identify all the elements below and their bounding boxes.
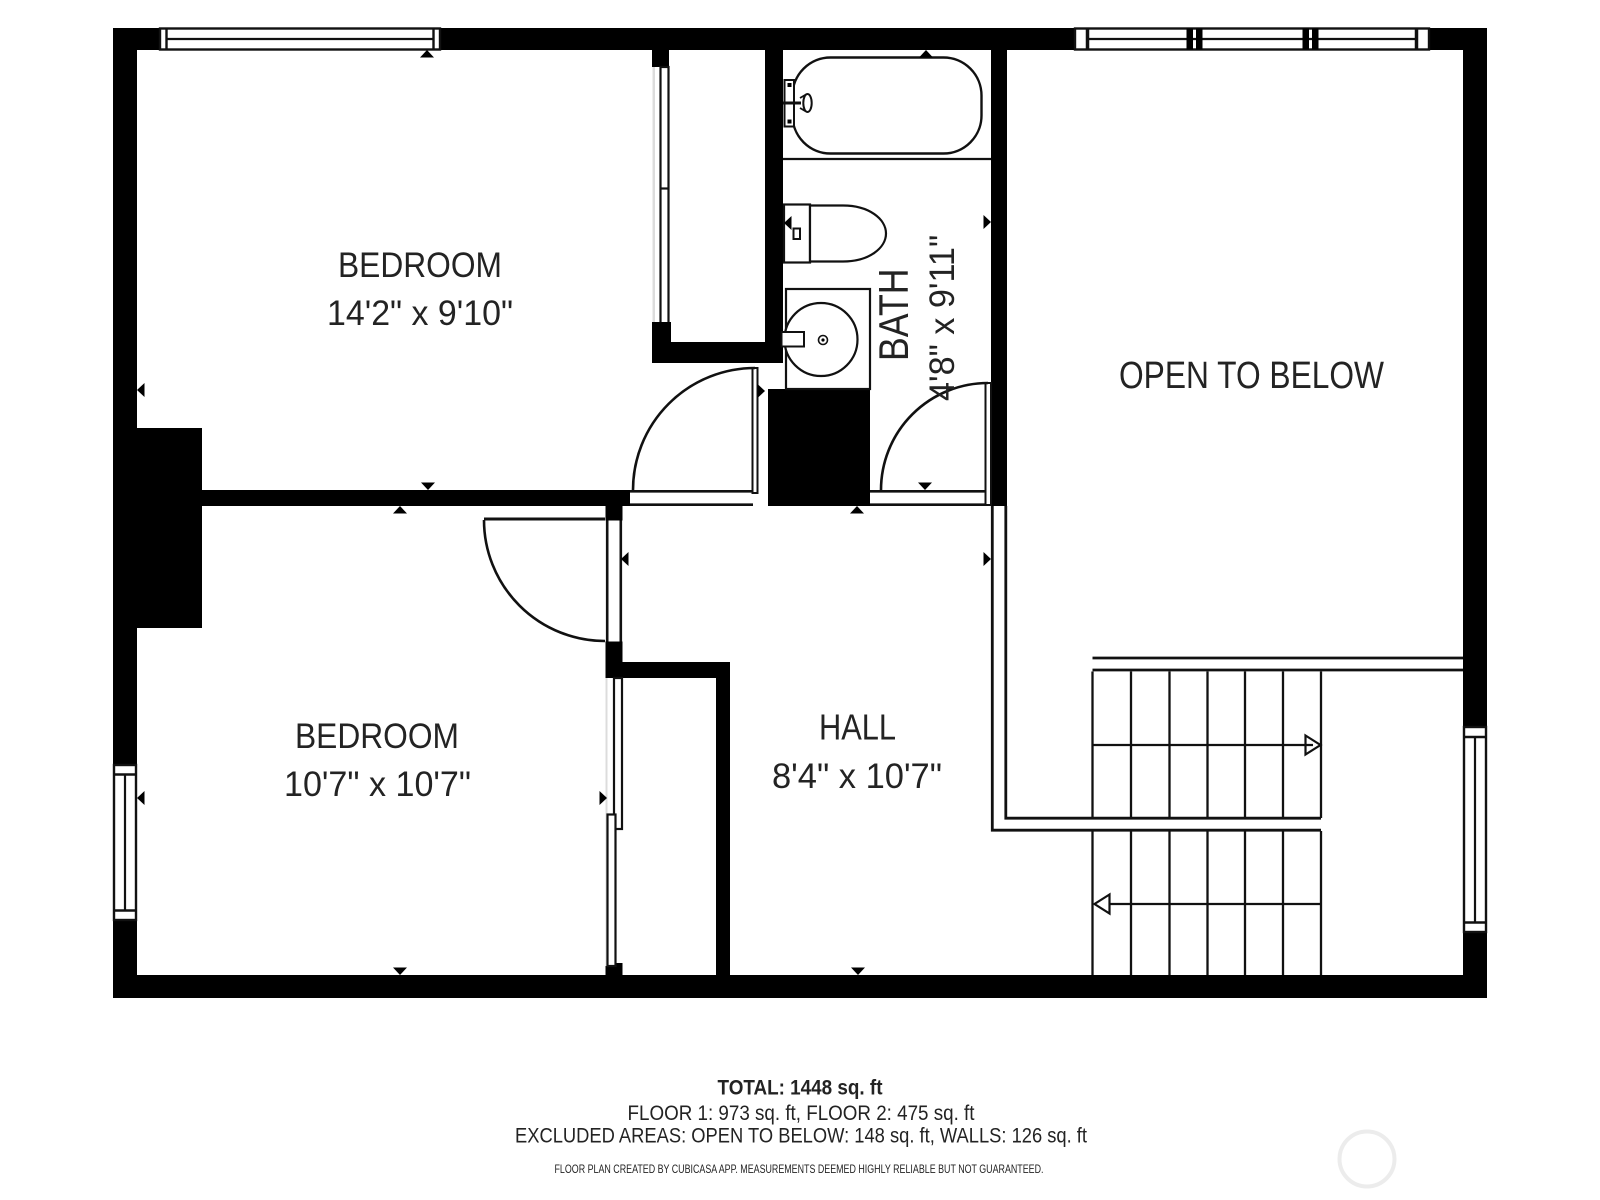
svg-text:HALL: HALL bbox=[819, 707, 896, 748]
svg-text:10'7" x 10'7": 10'7" x 10'7" bbox=[284, 765, 471, 804]
svg-text:FLOOR 1: 973 sq. ft, FLOOR 2:: FLOOR 1: 973 sq. ft, FLOOR 2: 475 sq. ft bbox=[628, 1102, 975, 1125]
svg-text:14'2" x 9'10": 14'2" x 9'10" bbox=[327, 294, 513, 333]
svg-text:EXCLUDED AREAS: OPEN TO BELOW:: EXCLUDED AREAS: OPEN TO BELOW: 148 sq. f… bbox=[515, 1124, 1087, 1148]
svg-text:FLOOR PLAN CREATED BY CUBICASA: FLOOR PLAN CREATED BY CUBICASA APP. MEAS… bbox=[555, 1162, 1044, 1176]
svg-text:BATH: BATH bbox=[871, 268, 917, 361]
svg-text:BEDROOM: BEDROOM bbox=[295, 717, 459, 756]
svg-text:4'8" x 9'11": 4'8" x 9'11" bbox=[924, 235, 962, 401]
svg-text:OPEN TO BELOW: OPEN TO BELOW bbox=[1119, 355, 1384, 397]
svg-text:BEDROOM: BEDROOM bbox=[338, 246, 502, 285]
svg-text:TOTAL: 1448 sq. ft: TOTAL: 1448 sq. ft bbox=[718, 1077, 883, 1100]
svg-text:8'4" x 10'7": 8'4" x 10'7" bbox=[772, 757, 942, 796]
